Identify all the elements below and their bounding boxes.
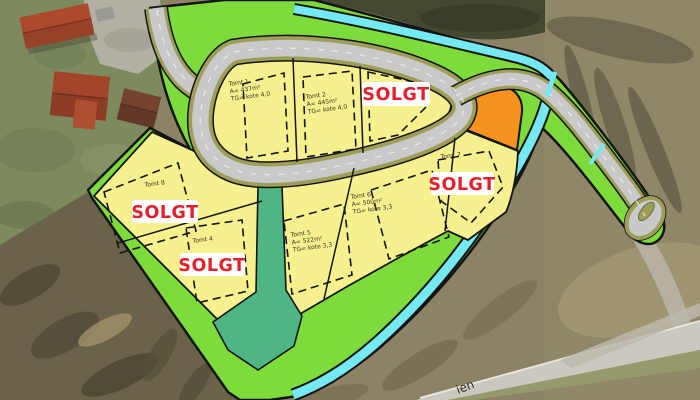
sold-badge-tomt-3: SOLGT bbox=[362, 82, 430, 106]
svg-text:SOLGT: SOLGT bbox=[428, 175, 495, 195]
sold-badge-tomt-7: SOLGT bbox=[428, 172, 495, 195]
svg-text:SOLGT: SOLGT bbox=[131, 203, 198, 223]
svg-text:SOLGT: SOLGT bbox=[362, 85, 429, 105]
svg-text:SOLGT: SOLGT bbox=[178, 256, 245, 276]
sold-badge-tomt-4: SOLGT bbox=[178, 253, 245, 276]
site-plan-map: ien bbox=[0, 0, 700, 400]
sold-badge-tomt-8: SOLGT bbox=[131, 200, 198, 223]
